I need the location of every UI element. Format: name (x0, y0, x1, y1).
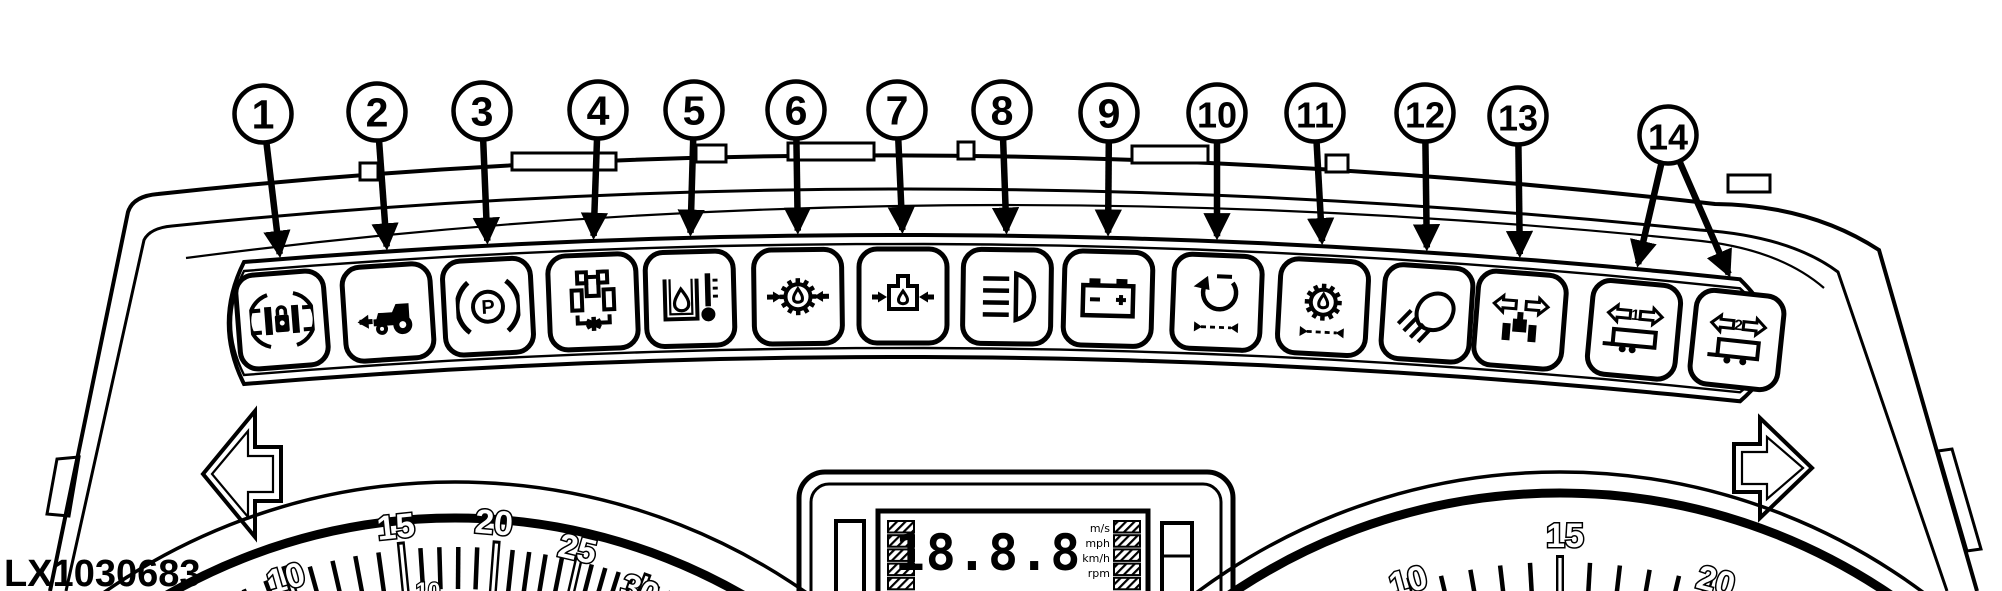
left-gauge-label: 30 (615, 566, 664, 591)
left-gauge-label: 20 (473, 502, 514, 543)
callout-arrow (1108, 143, 1109, 233)
lcd-unit-label: mph (1085, 537, 1110, 550)
instrument-panel-figure: P12 1234567891011121314 10 15 20 25 30 1… (0, 0, 2002, 591)
callout-arrow (1680, 162, 1729, 274)
callout-number: 5 (683, 88, 706, 134)
left-gauge-inner-label: 10 (416, 578, 440, 591)
indicator-tractor-direction (341, 263, 435, 362)
indicator-label: P (481, 296, 495, 319)
indicator-turn-signal-trailer-1: 1 (1586, 279, 1682, 381)
indicator-parking-brake: P (442, 257, 535, 355)
indicator-strip: P12 (229, 235, 1786, 401)
lcd-unit-label: m/s (1090, 522, 1110, 535)
callout-arrow (1003, 140, 1006, 231)
callout-arrow (691, 140, 694, 233)
gauge-tick (524, 552, 530, 591)
callout-3: 3 (454, 83, 511, 241)
gauge-tick (1670, 576, 1679, 591)
indicator-label: 1 (1630, 307, 1640, 325)
callout-number: 9 (1098, 91, 1121, 137)
top-edge-notches (360, 142, 1770, 192)
indicator-differential-lock (234, 270, 329, 371)
top-edge-notch (1132, 146, 1208, 163)
indicator-engine-oil-pressure (859, 249, 947, 343)
lcd-digits: 18.8.8 (895, 524, 1082, 582)
instrument-panel-illustration: P12 1234567891011121314 10 15 20 25 30 1… (0, 0, 2002, 591)
left-turn-arrow-icon (203, 411, 281, 537)
top-edge-notch (512, 153, 616, 170)
callout-arrow (594, 140, 597, 236)
gauge-tick (539, 555, 546, 591)
gauge-tick (1470, 570, 1477, 591)
callout-number: 7 (886, 88, 909, 134)
gauge-tick (1441, 576, 1450, 591)
indicator-cell (1063, 251, 1153, 347)
left-gauge-label: 15 (375, 506, 417, 548)
top-edge-notch (1728, 175, 1770, 192)
right-gauge-label: 15 (1546, 517, 1584, 555)
lcd-bargraph-segment (1114, 535, 1140, 547)
lcd-bargraph-segment (1114, 564, 1140, 576)
gauge-tick (1615, 566, 1620, 591)
callout-1: 1 (235, 86, 292, 255)
indicator-cell (962, 249, 1051, 344)
callout-number: 8 (991, 88, 1014, 134)
indicator-oil-filter-restriction (1277, 258, 1370, 357)
callout-number: 11 (1296, 95, 1334, 136)
right-gauge-label: 10 (1385, 558, 1431, 591)
indicator-turn-signal-trailer-2: 2 (1688, 289, 1785, 392)
callout-arrow (1638, 164, 1661, 264)
indicator-mfwd (547, 253, 639, 350)
indicator-battery-charge (1063, 251, 1153, 347)
top-edge-notch (958, 142, 974, 159)
indicator-air-filter-restriction (1171, 254, 1263, 351)
lcd-left-slot (836, 521, 864, 591)
gauge-tick (476, 547, 478, 589)
indicator-work-lights (1380, 264, 1474, 364)
gauge-tick (1588, 563, 1590, 591)
callout-arrow (379, 141, 387, 246)
indicator-cell (753, 249, 842, 344)
indicator-cell (1171, 254, 1263, 351)
callout-14: 14 (1638, 107, 1729, 275)
callout-number: 10 (1197, 95, 1237, 136)
indicator-turn-signal-tractor (1472, 270, 1567, 371)
gauge-tick (310, 567, 321, 591)
gauge-tick (508, 550, 513, 591)
callout-number: 4 (587, 88, 610, 134)
gauge-tick (378, 552, 384, 591)
callout-arrow (796, 140, 797, 231)
indicator-cell (645, 251, 735, 347)
gauge-tick (333, 561, 342, 591)
lcd-unit-label: rpm (1088, 567, 1110, 580)
callout-arrow (1317, 143, 1322, 242)
top-edge-notch (1326, 155, 1348, 172)
right-gauge-label: 20 (1693, 558, 1739, 591)
gauge-tick (1643, 570, 1650, 591)
callout-number: 13 (1498, 98, 1538, 139)
indicator-high-beam (962, 249, 1051, 344)
lcd-module: 18.8.8 m/s mph km/h rpm (799, 472, 1233, 591)
right-turn-arrow-icon (1734, 418, 1812, 518)
callout-arrow (1518, 146, 1519, 255)
callout-12: 12 (1397, 85, 1454, 248)
lcd-bargraph-segment (1114, 521, 1140, 533)
callout-number: 12 (1405, 95, 1445, 136)
callout-arrow (898, 140, 902, 231)
top-edge-notch (696, 145, 726, 162)
gauge-tick (1530, 563, 1532, 591)
callout-13: 13 (1490, 88, 1547, 255)
indicator-cell (1380, 264, 1474, 364)
figure-code: LX1030683 (4, 553, 201, 591)
callout-number: 2 (366, 90, 389, 136)
indicator-cell (547, 253, 639, 350)
lcd-bargraph-segment (1114, 549, 1140, 561)
gauge-tick (594, 568, 606, 591)
callout-number: 3 (471, 89, 494, 135)
callout-number: 14 (1648, 117, 1688, 158)
indicator-transmission-oil-pressure (753, 249, 842, 344)
gauge-tick (355, 556, 363, 591)
gauge-tick (606, 572, 619, 591)
callout-arrow (483, 141, 487, 241)
callout-arrow (1425, 143, 1426, 248)
top-edge-notch (788, 143, 874, 160)
indicator-coolant-temperature (645, 251, 735, 347)
lcd-unit-label: km/h (1082, 552, 1110, 565)
left-gauge-label: 10 (263, 555, 310, 591)
top-edge-notch (360, 163, 378, 180)
gauge-tick (1500, 566, 1505, 591)
callout-number: 6 (785, 88, 808, 134)
callout-number: 1 (252, 92, 275, 138)
callout-arrow (267, 143, 280, 254)
lcd-bargraph-segment (1114, 578, 1140, 590)
indicator-label: 2 (1733, 317, 1743, 335)
